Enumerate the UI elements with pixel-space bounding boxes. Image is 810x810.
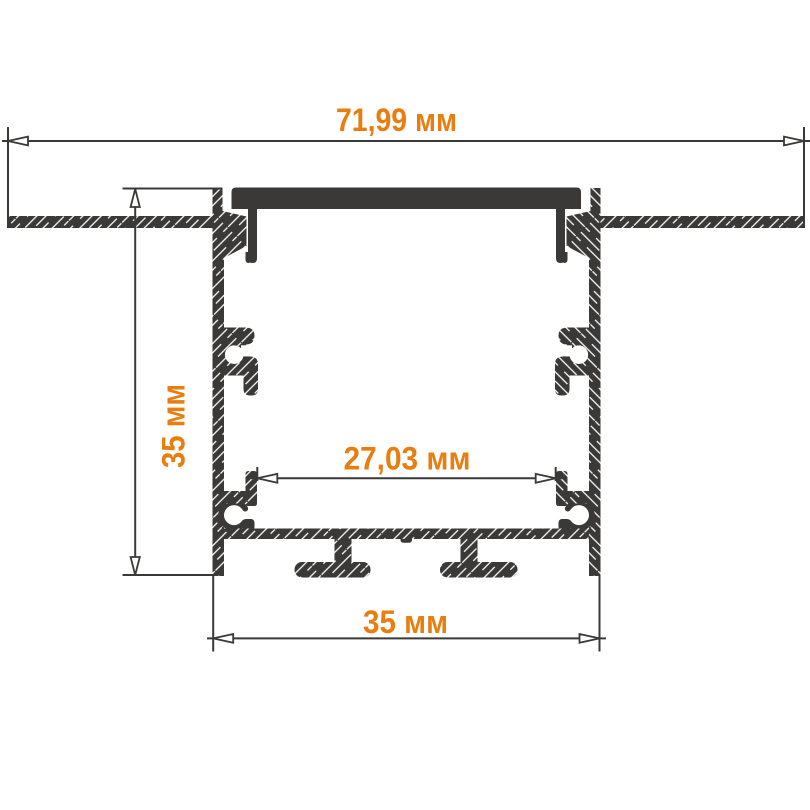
svg-text:71,99 мм: 71,99 мм [336, 102, 457, 138]
svg-text:35 мм: 35 мм [363, 604, 448, 640]
svg-text:35 мм: 35 мм [156, 384, 192, 468]
svg-text:27,03 мм: 27,03 мм [344, 441, 471, 477]
